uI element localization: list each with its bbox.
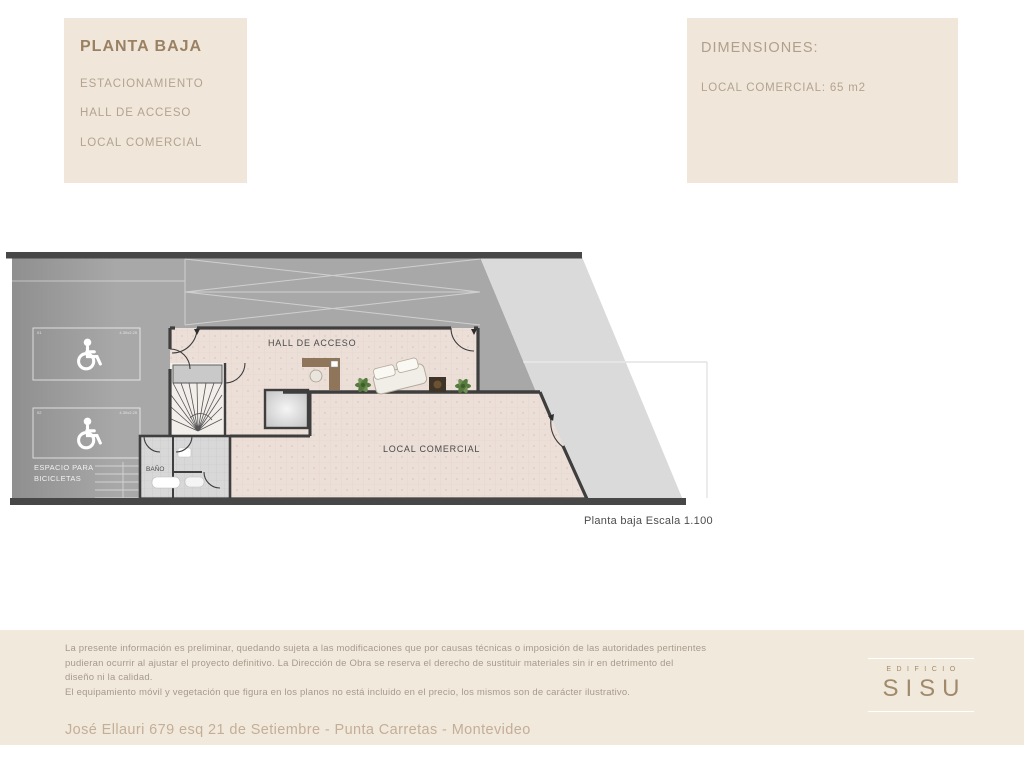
sisu-logo: EDIFICIO SISU xyxy=(868,658,974,712)
page: PLANTA BAJA ESTACIONAMIENTO HALL DE ACCE… xyxy=(0,0,1024,768)
disclaimer-text: La presente información es preliminar, q… xyxy=(65,642,706,700)
address-text: José Ellauri 679 esq 21 de Setiembre - P… xyxy=(65,722,531,738)
elevator xyxy=(265,390,308,428)
dimensions-local: LOCAL COMERCIAL: 65 m2 xyxy=(701,82,866,94)
local-label: LOCAL COMERCIAL xyxy=(383,444,480,454)
dimensions-box: DIMENSIONES: LOCAL COMERCIAL: 65 m2 xyxy=(687,18,958,183)
bikes-label-line1: ESPACIO PARA xyxy=(34,463,94,472)
bano-label: BAÑO xyxy=(146,464,164,473)
page-title: PLANTA BAJA xyxy=(80,38,202,56)
bano-room: BAÑO xyxy=(140,436,230,499)
dimensions-title: DIMENSIONES: xyxy=(701,40,819,56)
top-slab-edge xyxy=(6,252,582,259)
stall-2-number: 02 xyxy=(37,410,42,415)
disclaimer-line: La presente información es preliminar, q… xyxy=(65,642,706,657)
floor-plan: 01 4.30x2.25 02 4.30x2.25 ESPACIO PARA B… xyxy=(0,245,720,555)
stairs xyxy=(170,363,225,436)
logo-sisu-label: SISU xyxy=(875,675,974,703)
disclaimer-line: El equipamiento móvil y vegetación que f… xyxy=(65,686,706,701)
stall-1-number: 01 xyxy=(37,330,42,335)
bikes-label-line2: BICICLETAS xyxy=(34,474,81,483)
legend-item-hall: HALL DE ACCESO xyxy=(80,107,191,119)
plan-caption: Planta baja Escala 1.100 xyxy=(584,515,713,527)
stall-2-dimension: 4.30x2.25 xyxy=(119,410,137,415)
legend-item-estacionamiento: ESTACIONAMIENTO xyxy=(80,78,204,90)
logo-edificio-label: EDIFICIO xyxy=(873,666,974,673)
bottom-slab-edge xyxy=(10,498,686,505)
plan-legend-box: PLANTA BAJA ESTACIONAMIENTO HALL DE ACCE… xyxy=(64,18,247,183)
stall-1-dimension: 4.30x2.25 xyxy=(119,330,137,335)
hall-label: HALL DE ACCESO xyxy=(268,338,356,348)
disclaimer-line: diseño ni la calidad. xyxy=(65,671,706,686)
disclaimer-line: pudieran ocurrir al ajustar el proyecto … xyxy=(65,657,706,672)
footer-band: La presente información es preliminar, q… xyxy=(0,630,1024,745)
legend-item-local: LOCAL COMERCIAL xyxy=(80,137,202,149)
side-table xyxy=(429,377,446,392)
